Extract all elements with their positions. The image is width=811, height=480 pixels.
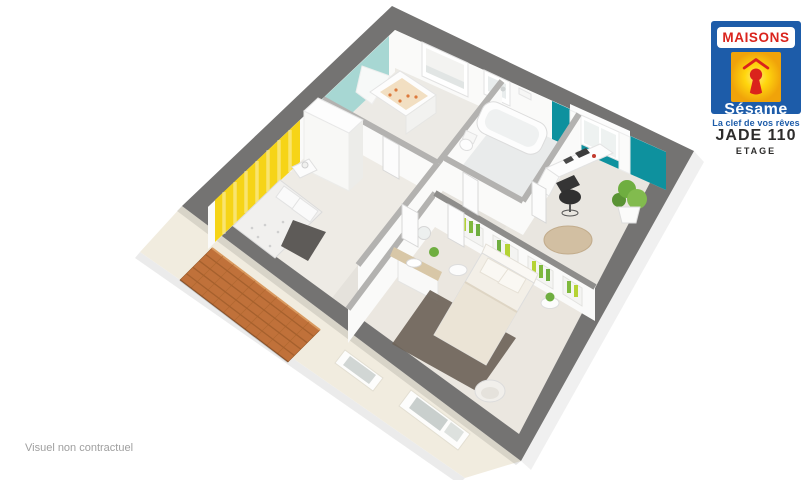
maisons-sesame-logo: MAISONS Sésame La clef de vos rêves bbox=[711, 21, 801, 128]
armchair bbox=[475, 380, 505, 402]
floorplan-3d-render bbox=[0, 0, 811, 480]
disclaimer-text: Visuel non contractuel bbox=[25, 442, 133, 454]
logo-maisons-box: MAISONS bbox=[717, 27, 795, 48]
keyhole-icon bbox=[731, 52, 781, 102]
plan-title: JADE 110 bbox=[700, 127, 811, 145]
plan-title-block: JADE 110 ETAGE bbox=[700, 127, 811, 156]
logo-yellow-door bbox=[731, 52, 781, 102]
round-mirror bbox=[418, 227, 431, 240]
office-round-rug bbox=[544, 226, 592, 254]
desk-accessory bbox=[592, 154, 596, 158]
logo-sesame-text: Sésame bbox=[711, 101, 801, 119]
logo-maisons-text: MAISONS bbox=[722, 30, 789, 45]
logo-blue-square: MAISONS Sésame bbox=[711, 21, 801, 114]
plan-subtitle: ETAGE bbox=[700, 146, 811, 156]
vanity-plant bbox=[429, 247, 439, 257]
bedside-table bbox=[449, 265, 467, 276]
floorplan-page: MAISONS Sésame La clef de vos rêves JADE… bbox=[0, 0, 811, 480]
lamp bbox=[302, 162, 308, 168]
sink bbox=[407, 259, 422, 267]
shower-head bbox=[501, 87, 506, 92]
door-office bbox=[532, 181, 546, 223]
